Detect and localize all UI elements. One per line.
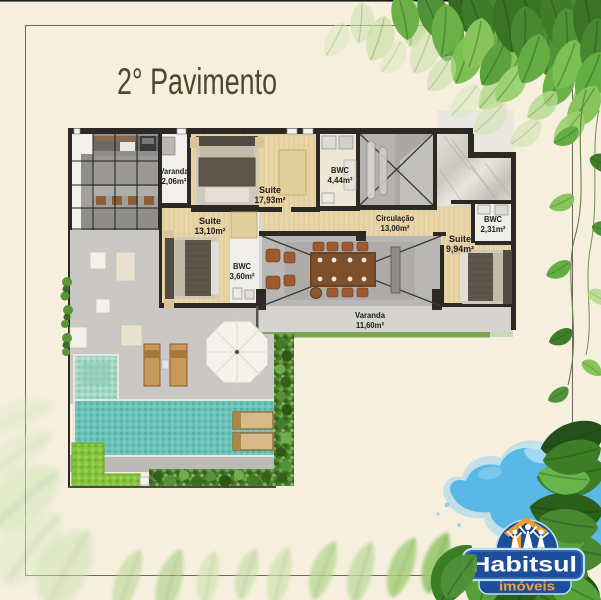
svg-text:imóveis: imóveis xyxy=(499,580,555,594)
svg-text:BWC: BWC xyxy=(233,261,251,271)
svg-text:Suite: Suite xyxy=(199,216,221,226)
svg-text:BWC: BWC xyxy=(331,165,349,175)
svg-text:2° Pavimento: 2° Pavimento xyxy=(117,61,277,102)
svg-text:17,93m²: 17,93m² xyxy=(255,195,286,205)
svg-text:Suite: Suite xyxy=(449,234,471,244)
svg-text:13,00m²: 13,00m² xyxy=(381,223,410,233)
svg-text:Circulação: Circulação xyxy=(376,213,414,223)
svg-text:13,10m²: 13,10m² xyxy=(195,226,226,236)
svg-text:3,60m²: 3,60m² xyxy=(230,271,255,281)
svg-text:BWC: BWC xyxy=(484,214,502,224)
svg-text:Varanda: Varanda xyxy=(160,166,189,176)
svg-text:11,60m²: 11,60m² xyxy=(356,320,384,330)
svg-text:4,44m²: 4,44m² xyxy=(328,175,353,185)
svg-text:Varanda: Varanda xyxy=(355,310,385,320)
svg-text:9,94m²: 9,94m² xyxy=(446,244,474,254)
svg-text:2,06m²: 2,06m² xyxy=(162,176,187,186)
svg-text:Habitsul: Habitsul xyxy=(471,553,577,577)
svg-text:2,31m²: 2,31m² xyxy=(481,224,506,234)
svg-text:Suite: Suite xyxy=(259,185,281,195)
